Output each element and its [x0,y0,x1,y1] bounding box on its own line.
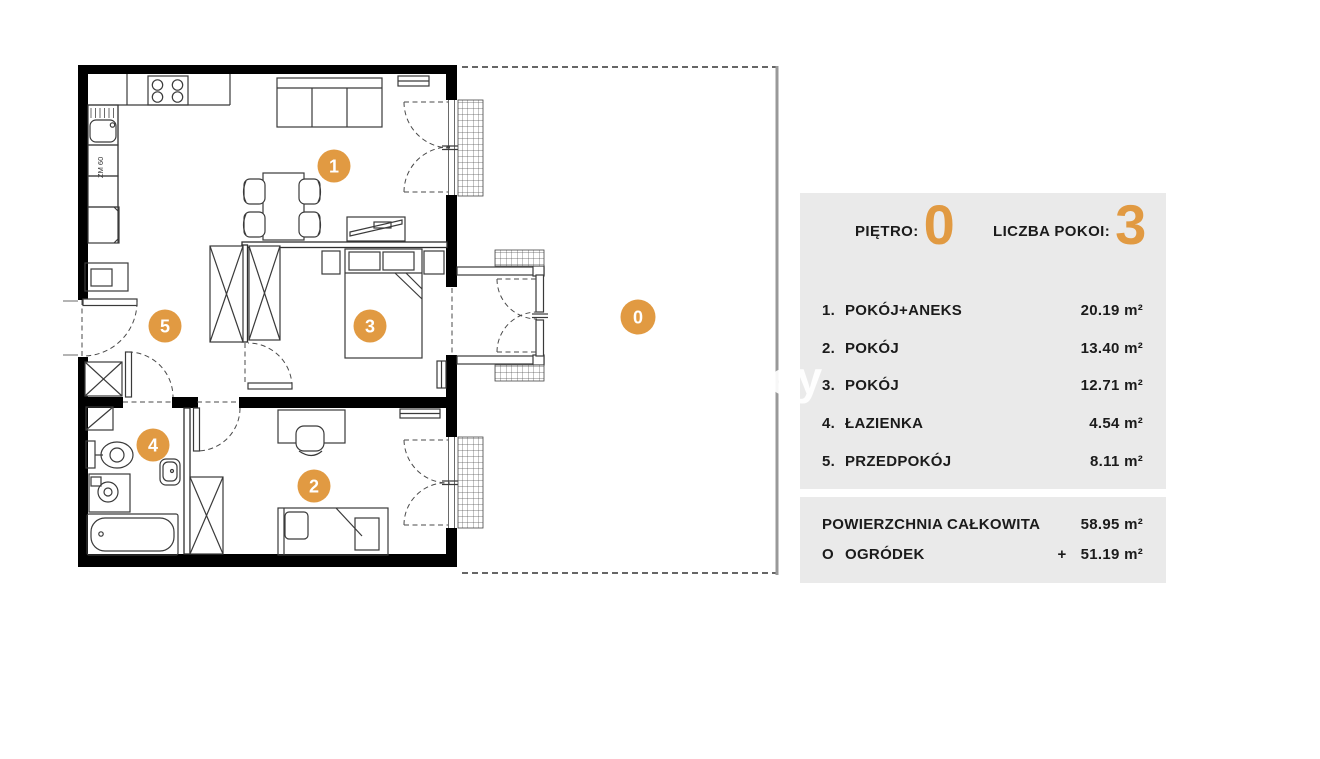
svg-text:0: 0 [633,308,643,328]
dishwasher-label: ZM 60 [96,157,105,178]
room-row: 5. PRZEDPOKÓJ 8.11 m² [822,442,1143,480]
garden-badge-0: 0 [621,300,656,335]
washing-machine [89,474,130,512]
svg-text:2: 2 [309,477,319,497]
floor-indicator: PIĘTRO: 0 [855,199,955,251]
fridge [88,207,119,243]
hall-cabinet [85,263,128,291]
french-door-bottom [404,437,483,528]
entrance-door [63,299,137,357]
tv-unit [347,217,405,241]
floor-label: PIĘTRO: [855,223,919,240]
room-badge-2: 2 [298,470,331,503]
terrace-grate [458,437,483,528]
kitchen-cabinet [88,176,118,207]
bathroom-sink [160,459,180,485]
terrace-grate [458,100,483,196]
room2-door [194,402,241,451]
sofa [277,78,382,127]
radiator [398,76,429,86]
radiator [400,409,440,418]
dishwasher: ZM 60 [88,145,118,178]
room-badge-5: 5 [149,310,182,343]
bathtub [87,514,178,555]
nightstand [424,251,444,274]
total-area-row: POWIERZCHNIA CAŁKOWITA 58.95 m² [822,509,1143,539]
dining-table [263,173,304,240]
kitchen-counter: ZM 60 [85,74,230,291]
room-badge-4: 4 [137,429,170,462]
nightstand [322,251,340,274]
watermark: cy [770,351,823,405]
porch-grate [495,250,544,266]
garden-porch [452,250,548,381]
bathroom-cabinet [86,407,113,430]
room-badge-1: 1 [318,150,351,183]
room-list: 1. POKÓJ+ANEKS 20.19 m² 2. POKÓJ 13.40 m… [822,292,1143,480]
svg-text:1: 1 [329,157,339,177]
wardrobe [210,246,243,342]
room3-door [245,343,292,389]
svg-text:4: 4 [148,436,158,456]
wardrobe [249,246,280,340]
single-bed [278,508,388,555]
wardrobe [190,477,223,554]
floor-value: 0 [924,201,955,249]
floor-plan-page: ZM 60 [0,0,1320,759]
rooms-count-value: 3 [1115,201,1146,249]
double-bed [345,249,422,358]
svg-text:5: 5 [160,317,170,337]
shoe-cabinet [85,362,122,396]
desk-chair [296,426,324,456]
rooms-count-indicator: LICZBA POKOI: 3 [993,199,1146,251]
room-row: 1. POKÓJ+ANEKS 20.19 m² [822,292,1143,330]
radiator [437,361,446,388]
bathroom-door [123,352,173,402]
kitchen-sink [88,105,118,145]
room-row: 2. POKÓJ 13.40 m² [822,330,1143,368]
room-badge-3: 3 [354,310,387,343]
toilet [86,441,133,468]
garden-area-row: O OGRÓDEK + 51.19 m² [822,539,1143,569]
legend-panel: PIĘTRO: 0 LICZBA POKOI: 3 1. POKÓJ+ANEKS… [800,193,1166,489]
stove [148,76,188,105]
rooms-count-label: LICZBA POKOI: [993,223,1110,240]
totals-panel: POWIERZCHNIA CAŁKOWITA 58.95 m² O OGRÓDE… [800,497,1166,583]
french-door-top [404,100,483,196]
garden-boundary [462,66,777,575]
svg-text:3: 3 [365,317,375,337]
room-row: 3. POKÓJ 12.71 m² [822,367,1143,405]
porch-grate [495,365,544,381]
room-row: 4. ŁAZIENKA 4.54 m² [822,405,1143,443]
